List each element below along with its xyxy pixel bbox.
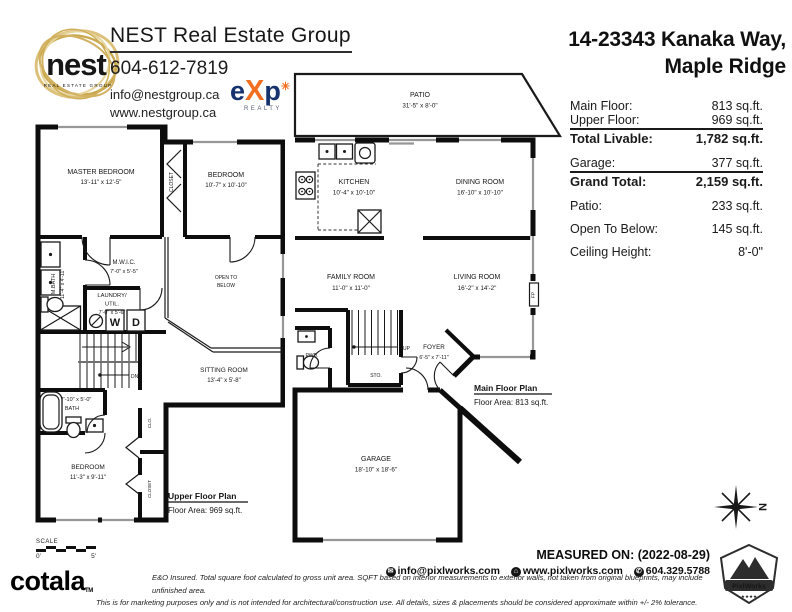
scale-start: 0'	[36, 553, 41, 560]
room-living-name: LIVING ROOM	[454, 274, 501, 281]
globe-icon: ⌂	[511, 567, 521, 577]
room-mwic-dims: 7'-0" x 5'-5"	[110, 269, 138, 275]
cotala-logo: cotalaTM	[10, 566, 93, 597]
room-bath-dims: 7'-10" x 5'-0"	[61, 397, 92, 403]
summary-row-garage: Garage: 377 sq.ft.	[570, 156, 763, 173]
room-closet-lower-label: CLOSET	[147, 480, 152, 498]
summary-label: Patio:	[570, 199, 602, 214]
brand-name: NEST Real Estate Group	[110, 24, 352, 53]
room-family-name: FAMILY ROOM	[327, 274, 375, 281]
main-plan-area: Floor Area: 813 sq.ft.	[474, 398, 548, 407]
room-laundry-name2: UTIL.	[105, 302, 120, 308]
compass-rose: N	[700, 478, 780, 538]
room-sitting-dims: 13'-4" x 5'-8"	[207, 378, 241, 384]
pixlworks-logo: PixlWorks ★★★★	[716, 543, 782, 607]
email-icon: ✉	[386, 567, 396, 577]
room-kitchen-name: KITCHEN	[339, 179, 370, 186]
summary-row-open-to-below: Open To Below: 145 sq.ft.	[570, 222, 763, 237]
room-bedroom3-dims: 11'-3" x 9'-11"	[70, 475, 106, 481]
kitchen-fixtures	[296, 143, 381, 233]
fireplace-label: FP	[531, 292, 537, 298]
summary-value: 233 sq.ft.	[712, 199, 763, 214]
bathtub-icon	[40, 392, 62, 432]
summary-value: 377 sq.ft.	[712, 156, 763, 170]
scale-label: SCALE	[36, 539, 96, 545]
open-to-below-label1: OPEN TO	[215, 275, 237, 281]
nest-logo-word: nest	[46, 47, 106, 82]
exp-letter-x: X	[245, 75, 264, 107]
upper-floor-plan: DN W D	[30, 120, 285, 535]
upper-plan-title: Upper Floor Plan	[168, 491, 236, 501]
summary-label: Grand Total:	[570, 173, 646, 190]
measured-block: MEASURED ON: (2022-08-29) ✉info@pixlwork…	[378, 548, 710, 577]
room-dining-name: DINING ROOM	[456, 179, 504, 186]
measured-on-label: MEASURED ON: (2022-08-29)	[378, 548, 710, 562]
room-mbath-dims: 11'-4" x 4'-11"	[60, 269, 66, 299]
pixlworks-name: PixlWorks	[732, 584, 766, 591]
summary-row-upper-floor: Upper Floor: 969 sq.ft.	[570, 113, 763, 130]
disclaimer-line2: This is for marketing purposes only and …	[96, 597, 708, 610]
summary-value: 813 sq.ft.	[712, 99, 763, 113]
summary-row-grand-total: Grand Total: 2,159 sq.ft.	[570, 173, 763, 190]
phone-icon: ✆	[634, 567, 644, 577]
summary-value: 2,159 sq.ft.	[696, 173, 763, 190]
flyer-page: nest REAL ESTATE GROUP NEST Real Estate …	[0, 0, 792, 612]
main-stairs	[352, 310, 398, 355]
pixlworks-website: www.pixlworks.com	[523, 565, 623, 577]
compass-north-label: N	[756, 503, 768, 511]
upper-plan-area: Floor Area: 969 sq.ft.	[168, 506, 242, 515]
powder-room-fixtures	[297, 331, 319, 369]
scale-bar: SCALE 0' 5'	[36, 539, 96, 560]
summary-value: 8'-0"	[738, 245, 763, 260]
room-foyer-dims: 6'-5" x 7'-11"	[419, 355, 448, 361]
room-laundry-dims: 7'-0" x 5'-6"	[99, 310, 126, 316]
pixlworks-email: info@pixlworks.com	[398, 565, 500, 577]
open-to-below-label2: BELOW	[217, 283, 235, 289]
main-walls	[295, 140, 533, 540]
summary-row-ceiling-height: Ceiling Height: 8'-0"	[570, 245, 763, 260]
pixlworks-phone: 604.329.5788	[646, 565, 710, 577]
room-living-dims: 16'-2" x 14'-2"	[458, 285, 497, 292]
room-kitchen-dims: 10'-4" x 10'-10"	[333, 190, 375, 197]
room-bedroom3-name: BEDROOM	[71, 464, 105, 471]
stairs-dn-label: DN	[131, 374, 139, 380]
room-closet-top-label: CLOSET	[169, 172, 175, 192]
upper-railing-open-below	[165, 237, 283, 352]
area-summary-table: Main Floor: 813 sq.ft. Upper Floor: 969 …	[570, 99, 763, 260]
room-garage-dims: 18'-10" x 18'-6"	[355, 467, 397, 474]
room-sto-label: STO.	[370, 373, 382, 379]
pixlworks-contact: ✉info@pixlworks.com ⌂www.pixlworks.com ✆…	[378, 565, 710, 577]
summary-label: Main Floor:	[570, 99, 633, 113]
pixlworks-stars: ★★★★	[741, 594, 758, 599]
exp-letter-e: e	[230, 76, 245, 106]
disclaimer: E&O Insured. Total square foot calculate…	[96, 572, 708, 610]
room-mbath-name: M.BATH	[51, 274, 57, 294]
room-master-name: MASTER BEDROOM	[67, 169, 134, 176]
summary-label: Ceiling Height:	[570, 245, 651, 260]
room-laundry-name: LAUNDRY/	[97, 293, 127, 299]
exp-realty-logo: eXp✳ REALTY	[230, 74, 290, 112]
summary-label: Garage:	[570, 156, 615, 170]
room-master-dims: 13'-11" x 12'-5"	[80, 179, 121, 186]
scale-bar-graphic	[36, 546, 94, 553]
room-garage-name: GARAGE	[361, 456, 391, 463]
room-bedroom2-dims: 10'-7" x 10'-10"	[205, 182, 247, 189]
utility-sink-icon	[90, 315, 103, 328]
address-line1: 14-23343 Kanaka Way,	[400, 26, 786, 53]
compass-star-icon	[714, 485, 758, 529]
room-sitting-name: SITTING ROOM	[200, 367, 248, 374]
dryer-label: D	[132, 317, 140, 329]
summary-value: 145 sq.ft.	[712, 222, 763, 237]
summary-label: Total Livable:	[570, 130, 653, 147]
cotala-word: cotala	[10, 566, 85, 596]
room-patio-dims: 31'-5" x 8'-0"	[402, 103, 437, 110]
room-dining-dims: 16'-10" x 10'-10"	[457, 190, 503, 197]
room-foyer-name: FOYER	[423, 344, 445, 351]
room-bedroom2-name: BEDROOM	[208, 172, 244, 179]
exp-letter-p: p	[264, 76, 281, 106]
room-family-dims: 11'-0" x 11'-0"	[332, 285, 370, 292]
room-patio-name: PATIO	[410, 92, 431, 99]
room-clo-label: CLO.	[147, 418, 152, 429]
main-floor-plan: UP FP	[288, 60, 573, 560]
summary-value: 1,782 sq.ft.	[696, 130, 763, 147]
stairs-up-label: UP	[403, 346, 411, 352]
cotala-tm: TM	[85, 588, 93, 594]
room-pwd-label: PWD.	[305, 353, 318, 359]
summary-label: Upper Floor:	[570, 113, 639, 127]
summary-row-patio: Patio: 233 sq.ft.	[570, 199, 763, 214]
summary-label: Open To Below:	[570, 222, 658, 237]
main-plan-title: Main Floor Plan	[474, 383, 537, 393]
nest-logo-tagline: REAL ESTATE GROUP	[44, 83, 113, 88]
washer-label: W	[110, 317, 121, 329]
room-mwic-name: M.W.I.C.	[113, 260, 136, 266]
scale-end: 5'	[91, 553, 96, 560]
summary-value: 969 sq.ft.	[712, 113, 763, 127]
room-bath-name: BATH	[65, 406, 79, 412]
summary-row-main-floor: Main Floor: 813 sq.ft.	[570, 99, 763, 113]
summary-row-total-livable: Total Livable: 1,782 sq.ft.	[570, 130, 763, 147]
